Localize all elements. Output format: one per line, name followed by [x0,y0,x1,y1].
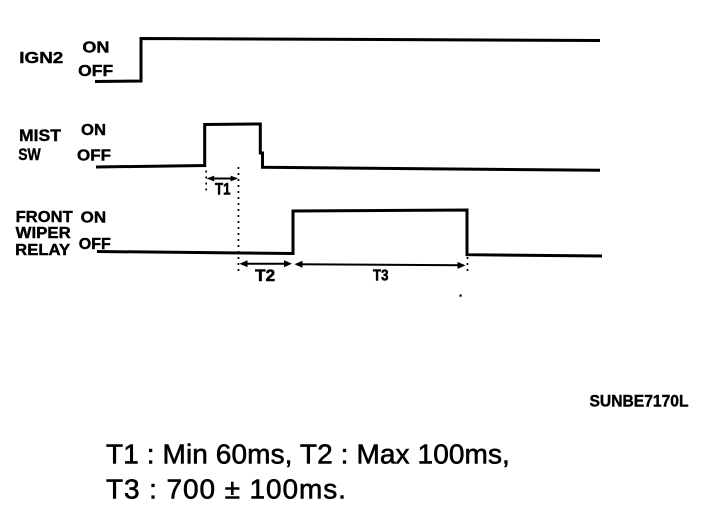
svg-text:ON: ON [81,122,106,139]
svg-text:RELAY: RELAY [15,242,70,259]
svg-text:OFF: OFF [77,148,111,165]
svg-text:T3: T3 [373,267,389,284]
svg-text:T2: T2 [255,266,275,285]
svg-text:WIPER: WIPER [16,225,71,242]
svg-text:T1 : Min 60ms, T2 : Max 100ms,: T1 : Min 60ms, T2 : Max 100ms, [106,438,510,469]
svg-text:ON: ON [82,39,109,56]
svg-text:IGN2: IGN2 [19,50,63,67]
svg-text:OFF: OFF [78,63,113,80]
svg-text:T1: T1 [215,179,231,198]
svg-text:FRONT: FRONT [16,209,73,226]
svg-text:SUNBE7170L: SUNBE7170L [590,392,689,410]
svg-text:MIST: MIST [19,126,62,145]
svg-text:T3 : 700 ± 100ms.: T3 : 700 ± 100ms. [106,473,347,504]
svg-text:SW: SW [18,146,41,164]
svg-text:ON: ON [81,209,107,226]
